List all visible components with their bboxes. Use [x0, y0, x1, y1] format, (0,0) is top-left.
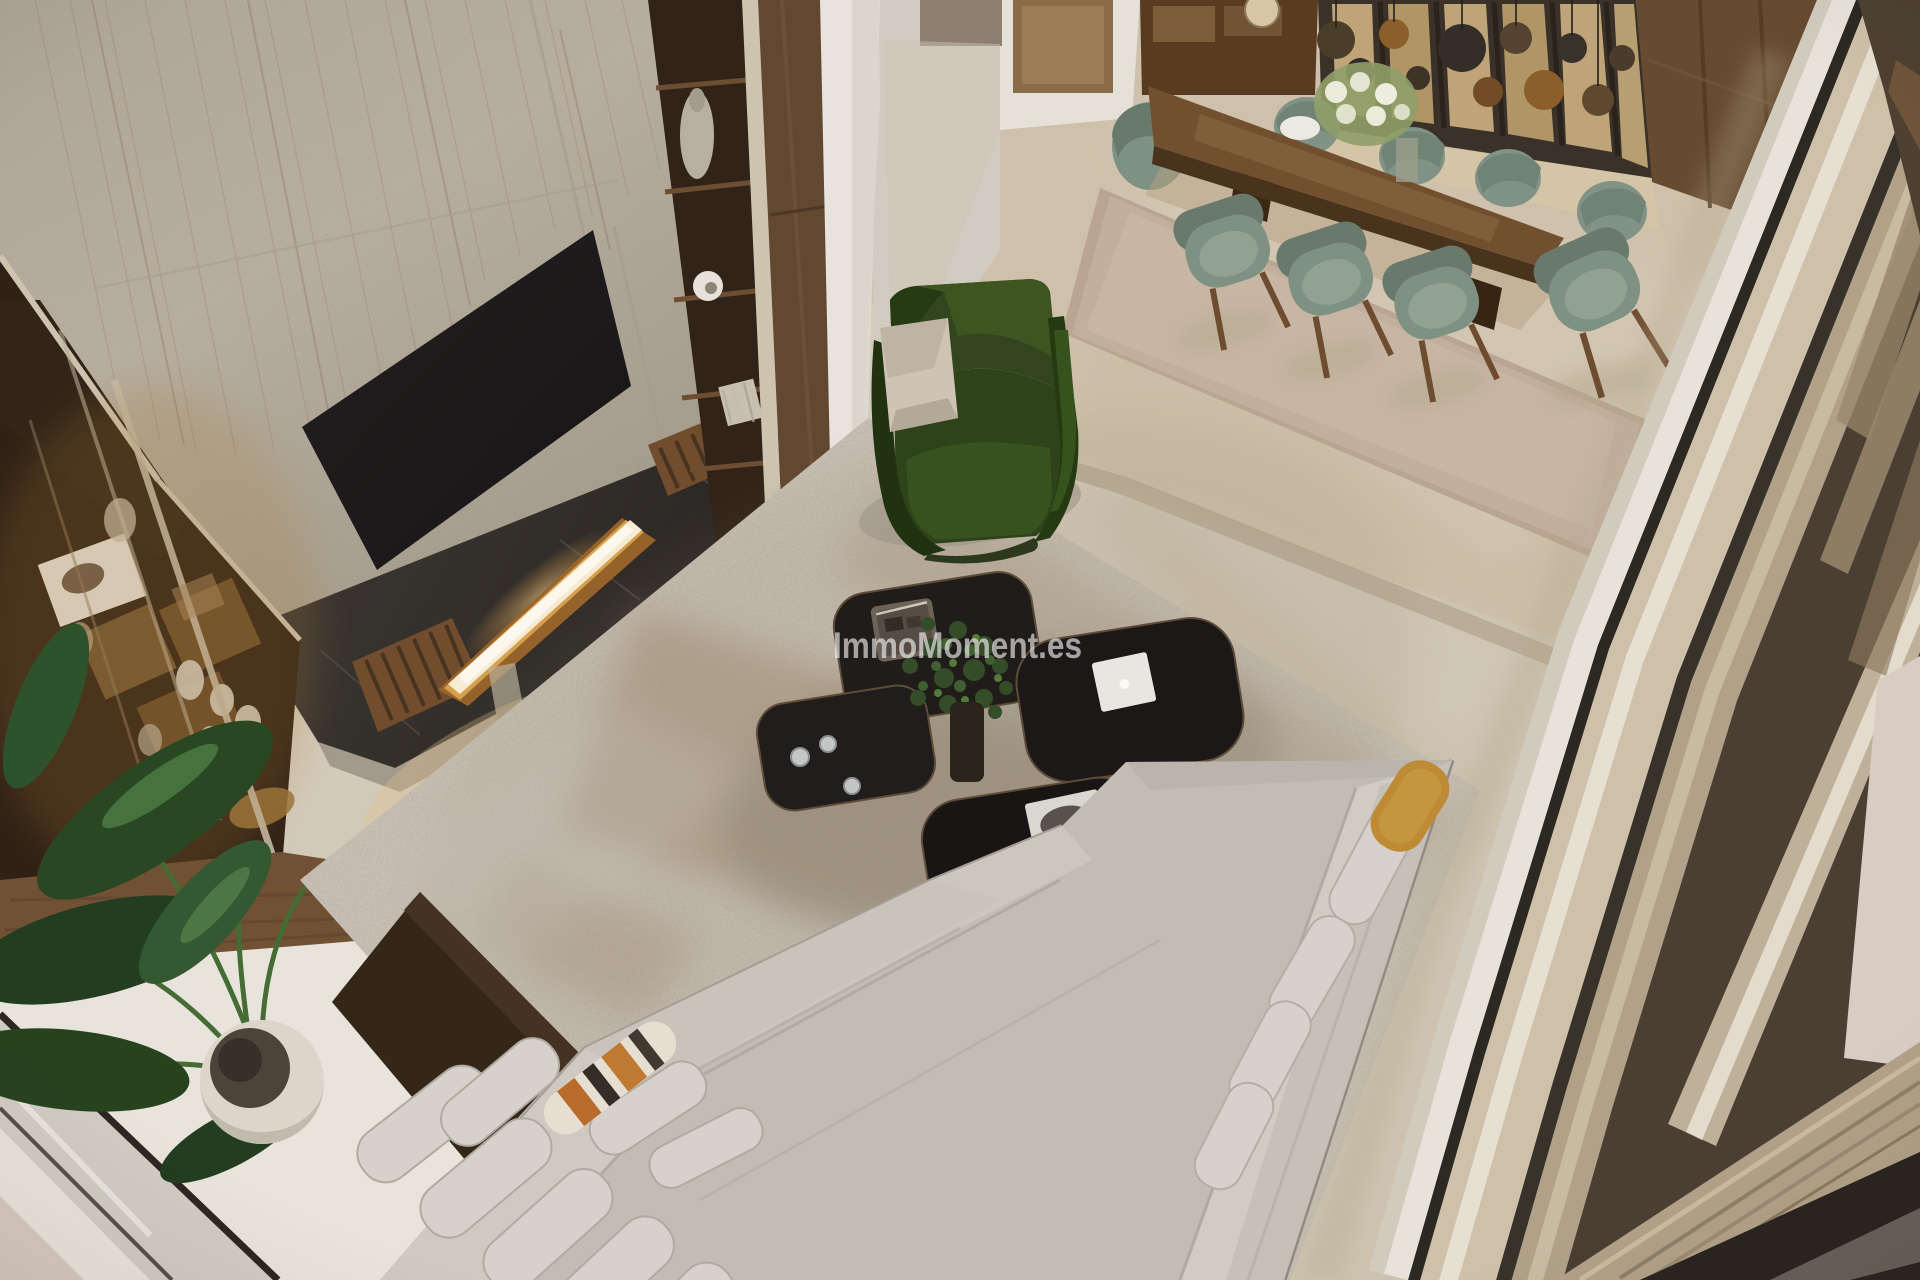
- svg-text:ImmoMoment.es: ImmoMoment.es: [833, 625, 1082, 666]
